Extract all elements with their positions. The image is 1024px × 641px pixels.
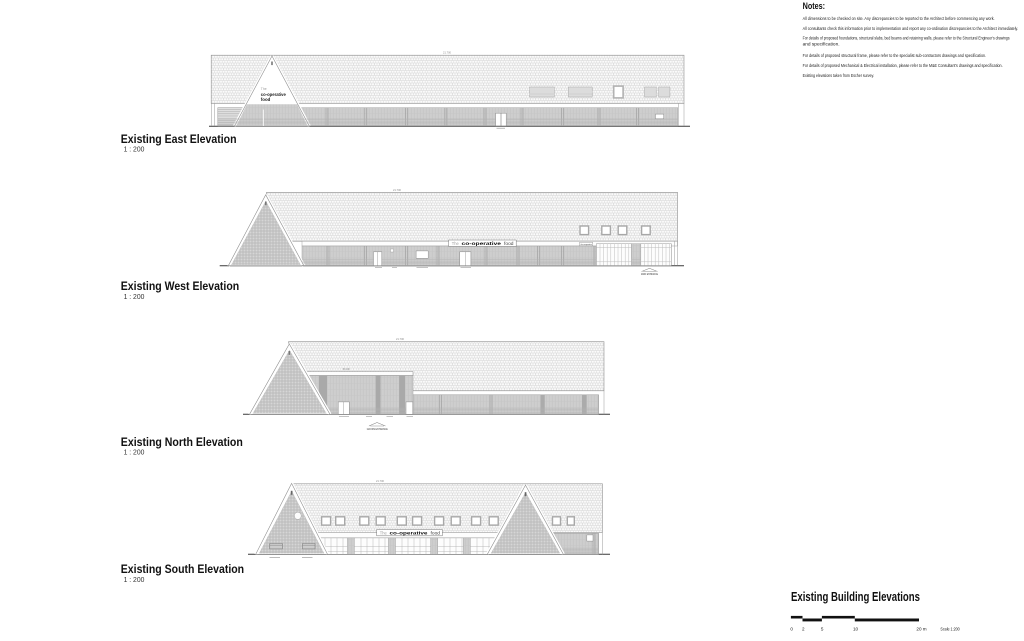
svg-text:Existing South Elevation: Existing South Elevation [121, 562, 244, 576]
svg-text:1 : 200: 1 : 200 [124, 450, 145, 457]
svg-text:15.200: 15.200 [342, 368, 350, 371]
svg-text:21.700: 21.700 [393, 188, 401, 192]
svg-text:Notes:: Notes: [803, 0, 826, 11]
svg-text:the co-operative: the co-operative [581, 243, 593, 246]
svg-text:GOODS ENTRANCE: GOODS ENTRANCE [367, 427, 388, 431]
svg-text:food: food [431, 530, 441, 536]
svg-text:Existing elevations taken from: Existing elevations taken from Escher su… [803, 73, 875, 79]
svg-text:2: 2 [802, 627, 805, 632]
svg-text:21.700: 21.700 [443, 51, 451, 55]
svg-text:21.700: 21.700 [396, 337, 404, 341]
svg-text:5: 5 [821, 627, 824, 632]
svg-text:All consultants check this inf: All consultants check this information p… [803, 26, 1019, 32]
svg-text:For details of proposed Mechan: For details of proposed Mechanical & Ele… [803, 63, 1003, 69]
svg-text:MAIN ENTRANCE: MAIN ENTRANCE [641, 272, 658, 276]
svg-text:1 : 200: 1 : 200 [124, 147, 145, 154]
svg-text:Existing East Elevation: Existing East Elevation [121, 132, 237, 146]
svg-text:The: The [261, 87, 267, 91]
svg-text:The: The [380, 530, 387, 536]
svg-text:and specification.: and specification. [803, 42, 840, 48]
svg-text:20 m: 20 m [916, 627, 926, 632]
svg-text:food: food [261, 97, 271, 102]
svg-text:10: 10 [853, 627, 859, 632]
svg-text:co-operative: co-operative [462, 241, 502, 247]
svg-text:Existing North Elevation: Existing North Elevation [121, 435, 243, 449]
svg-text:The: The [452, 241, 459, 247]
svg-text:Existing West Elevation: Existing West Elevation [121, 279, 239, 293]
svg-text:Scale 1:200: Scale 1:200 [940, 627, 960, 632]
svg-text:Existing Building Elevations: Existing Building Elevations [791, 589, 920, 604]
svg-text:For details of proposed founda: For details of proposed foundations, str… [803, 36, 1010, 42]
svg-text:1 : 200: 1 : 200 [124, 294, 145, 301]
svg-text:0: 0 [790, 627, 793, 632]
svg-text:For details of proposed struct: For details of proposed structural frame… [803, 53, 987, 59]
svg-text:1 : 200: 1 : 200 [124, 577, 145, 584]
svg-text:21.700: 21.700 [376, 479, 384, 483]
svg-text:co-operative: co-operative [390, 530, 428, 536]
svg-text:All dimensions to be checked o: All dimensions to be checked on site. An… [803, 16, 995, 22]
svg-text:food: food [504, 241, 514, 247]
